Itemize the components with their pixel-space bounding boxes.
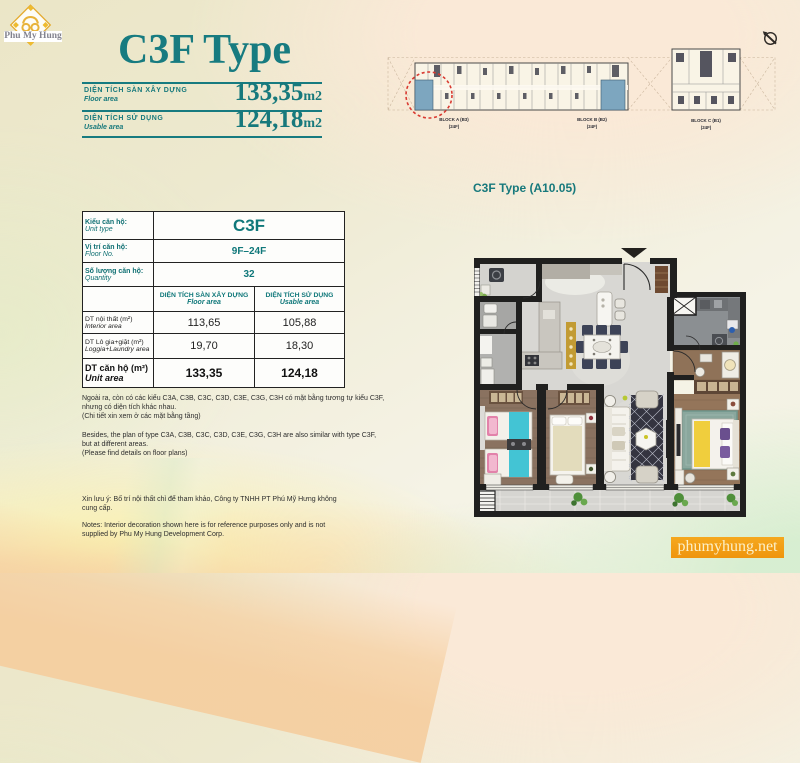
svg-text:BLOCK A (B3): BLOCK A (B3) [439, 117, 469, 122]
svg-text:BLOCK C (B1): BLOCK C (B1) [691, 118, 721, 123]
svg-text:(24F): (24F) [587, 124, 598, 129]
svg-text:(24F): (24F) [701, 125, 712, 130]
svg-text:(24F): (24F) [449, 124, 460, 129]
svg-text:BLOCK B (B2): BLOCK B (B2) [577, 117, 607, 122]
